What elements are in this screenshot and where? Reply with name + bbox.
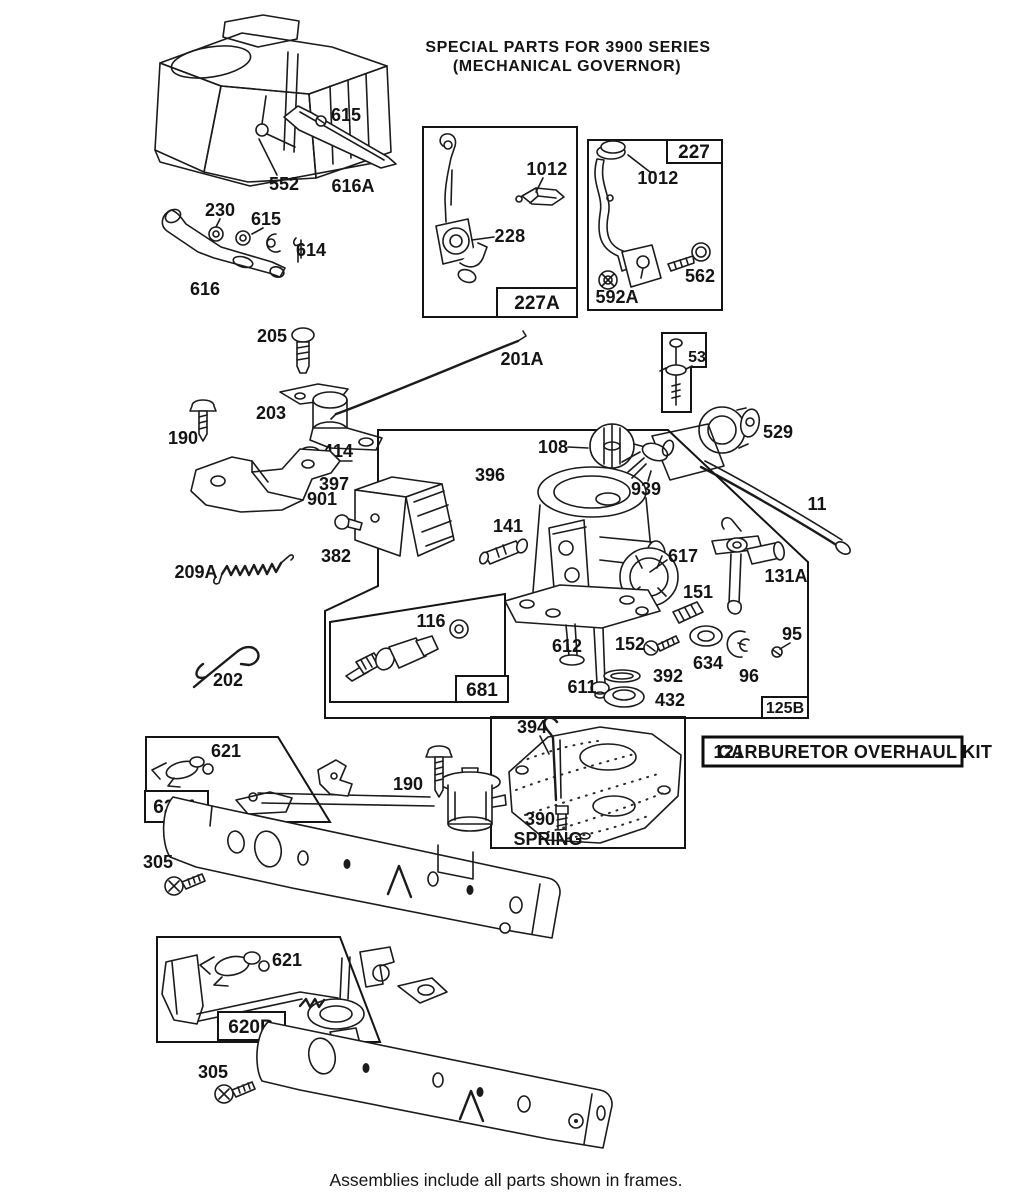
label-562: 562: [685, 266, 715, 286]
washer-634-drawing: [690, 626, 722, 646]
label-96: 96: [739, 666, 759, 686]
washer-230: [209, 227, 223, 241]
rod-201A-drawing: [331, 331, 526, 419]
frame-label-53: 53: [688, 349, 706, 366]
label-390-spring: SPRING: [513, 829, 582, 849]
spacer-620A-drawing: [440, 768, 506, 831]
label-141: 141: [493, 516, 523, 536]
diagram-title-line1: SPECIAL PARTS FOR 3900 SERIES: [425, 39, 710, 56]
label-392: 392: [653, 666, 683, 686]
label-203: 203: [256, 403, 286, 423]
frame-label-125B: 125B: [766, 700, 804, 717]
diagram-canvas: SPECIAL PARTS FOR 3900 SERIES (MECHANICA…: [0, 0, 1011, 1200]
kit-label: CARBURETOR OVERHAUL KIT: [718, 742, 992, 762]
engine-block-drawing: [155, 15, 396, 186]
nozzle-141-drawing: [478, 538, 529, 565]
label-305-bot: 305: [198, 1062, 228, 1082]
seal-432-drawing: [604, 687, 644, 707]
label-205: 205: [257, 326, 287, 346]
oring-392-drawing: [604, 670, 640, 682]
label-621-bot: 621: [272, 950, 302, 970]
label-552: 552: [269, 174, 299, 194]
label-11: 11: [807, 494, 826, 514]
spring-209A-drawing: [214, 555, 293, 584]
label-1012-b: 1012: [637, 168, 678, 188]
footer-caption: Assemblies include all parts shown in fr…: [329, 1170, 682, 1190]
label-108: 108: [538, 437, 568, 457]
stud-612: [560, 655, 584, 665]
label-614: 614: [296, 240, 326, 260]
washer-116: [450, 620, 468, 638]
parts-diagram-page: SPECIAL PARTS FOR 3900 SERIES (MECHANICA…: [0, 0, 1011, 1200]
clip-96-drawing: [727, 631, 749, 657]
assembly-frame-125B: [325, 424, 808, 718]
label-394: 394: [517, 717, 547, 737]
label-432: 432: [655, 690, 685, 710]
label-939: 939: [631, 479, 661, 499]
screw-305-bot-drawing: [215, 1082, 255, 1103]
label-1012-a: 1012: [526, 159, 567, 179]
label-592A: 592A: [595, 287, 638, 307]
leader-552: [259, 139, 277, 175]
label-616A: 616A: [331, 176, 374, 196]
label-396: 396: [475, 465, 505, 485]
label-209A: 209A: [174, 562, 217, 582]
label-611: 611: [567, 677, 596, 697]
label-397: 397: [319, 474, 349, 494]
label-634: 634: [693, 653, 723, 673]
label-228: 228: [495, 226, 526, 246]
assembly-frame-53: [660, 333, 706, 412]
label-151: 151: [683, 582, 713, 602]
washer-615: [236, 231, 250, 245]
grommet-529-drawing: [699, 407, 762, 453]
frame-label-227A: 227A: [514, 293, 560, 314]
label-305-top: 305: [143, 852, 173, 872]
label-95: 95: [782, 624, 802, 644]
bracket-620A-drawing: [164, 797, 560, 938]
c-ring-615: [267, 234, 280, 252]
label-382: 382: [321, 546, 351, 566]
label-529: 529: [763, 422, 793, 442]
label-116: 116: [416, 611, 445, 631]
label-390: 390: [525, 809, 555, 829]
screw-152-drawing: [644, 636, 679, 655]
needle-116-drawing: [346, 620, 468, 681]
screw-305-top-drawing: [165, 874, 205, 895]
label-616: 616: [190, 279, 220, 299]
label-152: 152: [615, 634, 645, 654]
frame-label-681: 681: [466, 680, 498, 701]
lever-228-drawing: [436, 134, 487, 285]
part-1012-drawing: [516, 178, 564, 205]
label-617: 617: [668, 546, 698, 566]
block-396-drawing: [335, 477, 454, 556]
bracket-620B-drawing: [257, 1022, 612, 1148]
label-131A: 131A: [764, 566, 807, 586]
label-190-top: 190: [168, 428, 198, 448]
screw-95-drawing: [772, 643, 790, 657]
bolt-205-drawing: [292, 328, 314, 373]
label-615-mid: 615: [251, 209, 281, 229]
gear-621b-drawing: [200, 952, 269, 986]
label-230: 230: [205, 200, 235, 220]
lever-227-drawing: [595, 141, 661, 287]
label-190-mid: 190: [393, 774, 423, 794]
label-621-top: 621: [211, 741, 241, 761]
diagram-title-line2: (MECHANICAL GOVERNOR): [453, 58, 681, 75]
gear-621a-drawing: [152, 757, 213, 787]
label-202: 202: [213, 670, 243, 690]
frame-label-227: 227: [678, 142, 710, 163]
leader-228: [472, 237, 494, 240]
label-615-top: 615: [331, 105, 361, 125]
label-612: 612: [552, 636, 582, 656]
spring-151-drawing: [673, 602, 703, 623]
label-201A: 201A: [500, 349, 543, 369]
assembly-frame-227A: [423, 127, 577, 317]
